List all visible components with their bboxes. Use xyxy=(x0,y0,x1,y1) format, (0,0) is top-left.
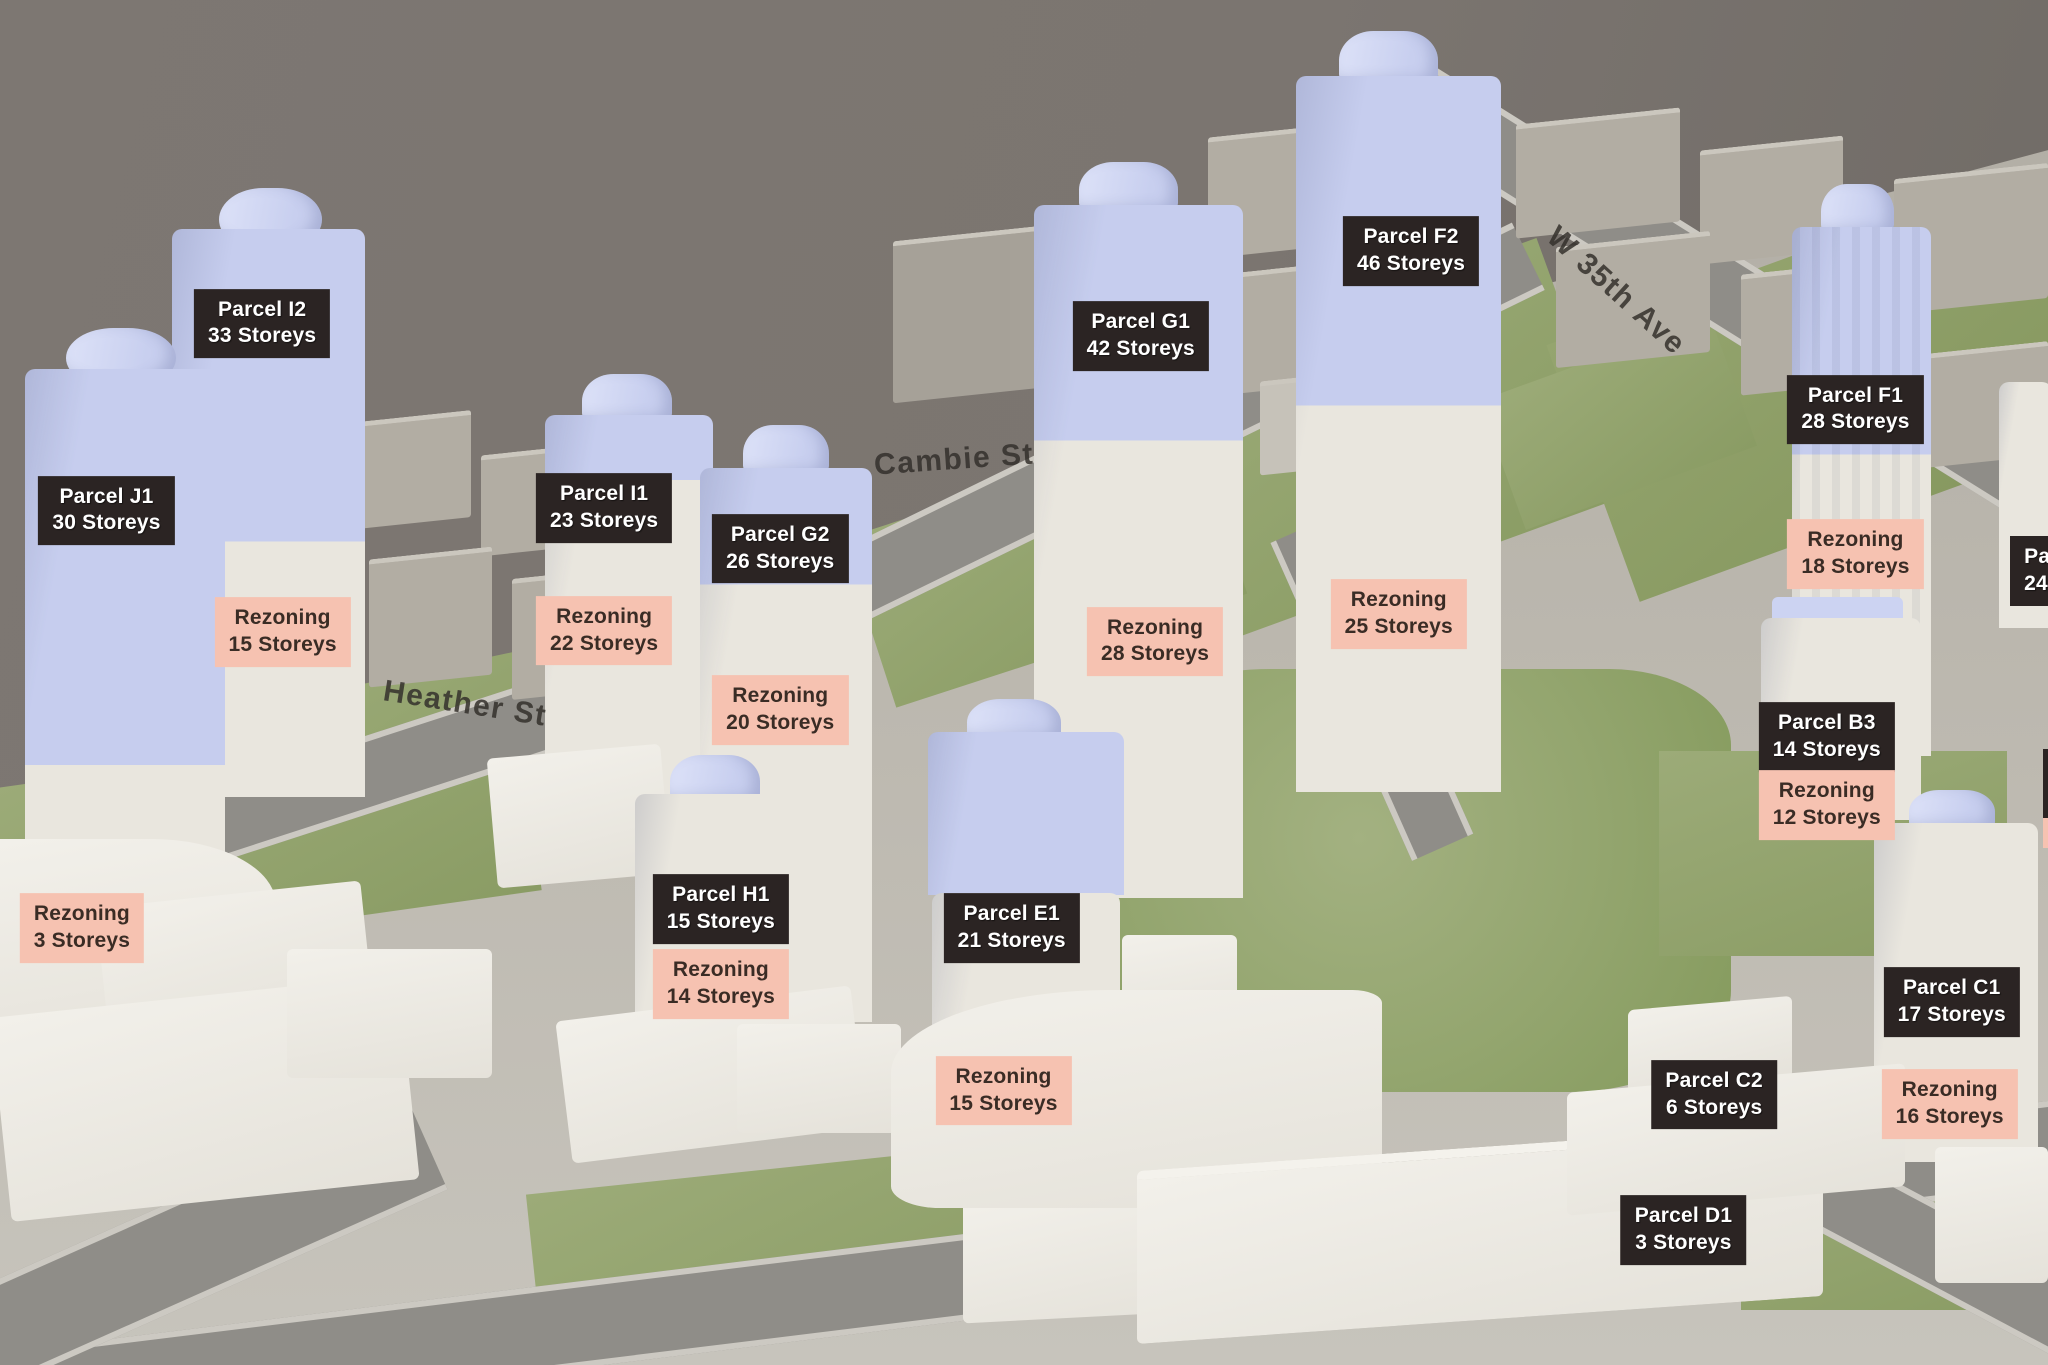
label-line-2: 16 Storeys xyxy=(1896,1104,2004,1131)
parcel-label-f1: Parcel F128 Storeys xyxy=(1787,375,1923,445)
parcel-label-a-partial: Pa24 xyxy=(2010,536,2048,606)
label-line-2: 3 Storeys xyxy=(1635,1230,1731,1257)
label-line-2: 33 Storeys xyxy=(208,324,316,351)
rezoning-label-r-f2: Rezoning25 Storeys xyxy=(1331,579,1467,649)
parcel-label-g2: Parcel G226 Storeys xyxy=(712,514,848,584)
label-line-2: 3 Storeys xyxy=(34,928,130,955)
label-line-1: Parcel I2 xyxy=(218,297,306,324)
parcel-label-b3: Parcel B314 Storeys xyxy=(1759,702,1895,772)
rezoning-label-r-i1: Rezoning22 Storeys xyxy=(536,596,672,666)
label-line-2: 18 Storeys xyxy=(1801,554,1909,581)
rezoning-label-r-h1: Rezoning14 Storeys xyxy=(653,949,789,1019)
label-line-2: 28 Storeys xyxy=(1101,642,1209,669)
label-line-1: Rezoning xyxy=(556,604,652,631)
label-line-1: Parcel G2 xyxy=(731,522,830,549)
label-line-1: Parcel G1 xyxy=(1091,309,1190,336)
parcel-label-e1: Parcel E121 Storeys xyxy=(944,893,1080,963)
label-line-1: Parcel I1 xyxy=(560,481,648,508)
parcel-label-d1: Parcel D13 Storeys xyxy=(1621,1195,1747,1265)
parcel-label-c1: Parcel C117 Storeys xyxy=(1884,967,2020,1037)
street-label-w35th: W 35th Ave xyxy=(1540,220,1692,362)
label-line-1: Parcel E1 xyxy=(964,901,1060,928)
label-line-1: Pa xyxy=(2024,544,2048,571)
label-line-1: Rezoning xyxy=(1807,527,1903,554)
label-line-1: Rezoning xyxy=(34,901,130,928)
label-line-2: 46 Storeys xyxy=(1357,251,1465,278)
parcel-label-c2: Parcel C26 Storeys xyxy=(1651,1060,1777,1130)
parcel-label-j1: Parcel J130 Storeys xyxy=(38,476,174,546)
clipped-rezoning-label xyxy=(2043,818,2048,848)
parcel-label-i1: Parcel I123 Storeys xyxy=(536,473,672,543)
label-line-2: 42 Storeys xyxy=(1087,336,1195,363)
label-line-2: 14 Storeys xyxy=(667,984,775,1011)
street-label-heather: Heather St xyxy=(381,675,549,734)
label-line-2: 14 Storeys xyxy=(1773,737,1881,764)
label-line-1: Parcel D1 xyxy=(1635,1203,1733,1230)
label-line-2: 23 Storeys xyxy=(550,508,658,535)
label-line-2: 6 Storeys xyxy=(1666,1095,1762,1122)
label-line-2: 15 Storeys xyxy=(949,1091,1057,1118)
label-line-2: 24 xyxy=(2024,571,2048,598)
label-line-2: 15 Storeys xyxy=(228,632,336,659)
label-line-1: Rezoning xyxy=(235,605,331,632)
label-line-2: 17 Storeys xyxy=(1898,1002,2006,1029)
label-line-1: Parcel B3 xyxy=(1778,710,1876,737)
label-line-1: Parcel F2 xyxy=(1363,224,1458,251)
label-line-1: Rezoning xyxy=(1107,615,1203,642)
rezoning-label-r-e1: Rezoning15 Storeys xyxy=(935,1056,1071,1126)
parcel-label-i2: Parcel I233 Storeys xyxy=(194,289,330,359)
label-line-1: Rezoning xyxy=(673,957,769,984)
rezoning-label-r-c1: Rezoning16 Storeys xyxy=(1882,1069,2018,1139)
rezoning-label-r-j1: Rezoning3 Storeys xyxy=(20,893,144,963)
label-line-1: Parcel J1 xyxy=(59,484,153,511)
label-line-1: Rezoning xyxy=(732,683,828,710)
rezoning-label-r-b3: Rezoning12 Storeys xyxy=(1759,770,1895,840)
label-line-2: 30 Storeys xyxy=(52,511,160,538)
label-line-1: Parcel C1 xyxy=(1903,975,2001,1002)
label-line-2: 26 Storeys xyxy=(726,549,834,576)
parcel-label-h1: Parcel H115 Storeys xyxy=(653,874,789,944)
parcel-label-g1: Parcel G142 Storeys xyxy=(1073,301,1209,371)
clipped-parcel-label xyxy=(2043,749,2048,817)
label-line-1: Rezoning xyxy=(1902,1077,1998,1104)
label-line-1: Rezoning xyxy=(1779,778,1875,805)
label-line-2: 12 Storeys xyxy=(1773,805,1881,832)
rezoning-label-r-f1: Rezoning18 Storeys xyxy=(1787,519,1923,589)
label-line-2: 28 Storeys xyxy=(1801,410,1909,437)
rezoning-label-r-g2: Rezoning20 Storeys xyxy=(712,675,848,745)
label-line-2: 21 Storeys xyxy=(958,928,1066,955)
labels-layer: Parcel I233 StoreysParcel J130 StoreysPa… xyxy=(0,0,2048,1365)
label-line-1: Parcel C2 xyxy=(1665,1068,1763,1095)
street-label-cambie: Cambie St xyxy=(873,437,1035,482)
label-line-1: Parcel H1 xyxy=(672,882,770,909)
parcel-label-f2: Parcel F246 Storeys xyxy=(1343,216,1479,286)
massing-model-rendering: Parcel I233 StoreysParcel J130 StoreysPa… xyxy=(0,0,2048,1365)
label-line-1: Rezoning xyxy=(1351,587,1447,614)
label-line-1: Parcel F1 xyxy=(1808,383,1903,410)
label-line-1: Rezoning xyxy=(955,1064,1051,1091)
rezoning-label-r-g1: Rezoning28 Storeys xyxy=(1087,607,1223,677)
rezoning-label-r-i2: Rezoning15 Storeys xyxy=(214,597,350,667)
label-line-2: 25 Storeys xyxy=(1345,614,1453,641)
label-line-2: 15 Storeys xyxy=(667,909,775,936)
label-line-2: 22 Storeys xyxy=(550,631,658,658)
label-line-2: 20 Storeys xyxy=(726,710,834,737)
